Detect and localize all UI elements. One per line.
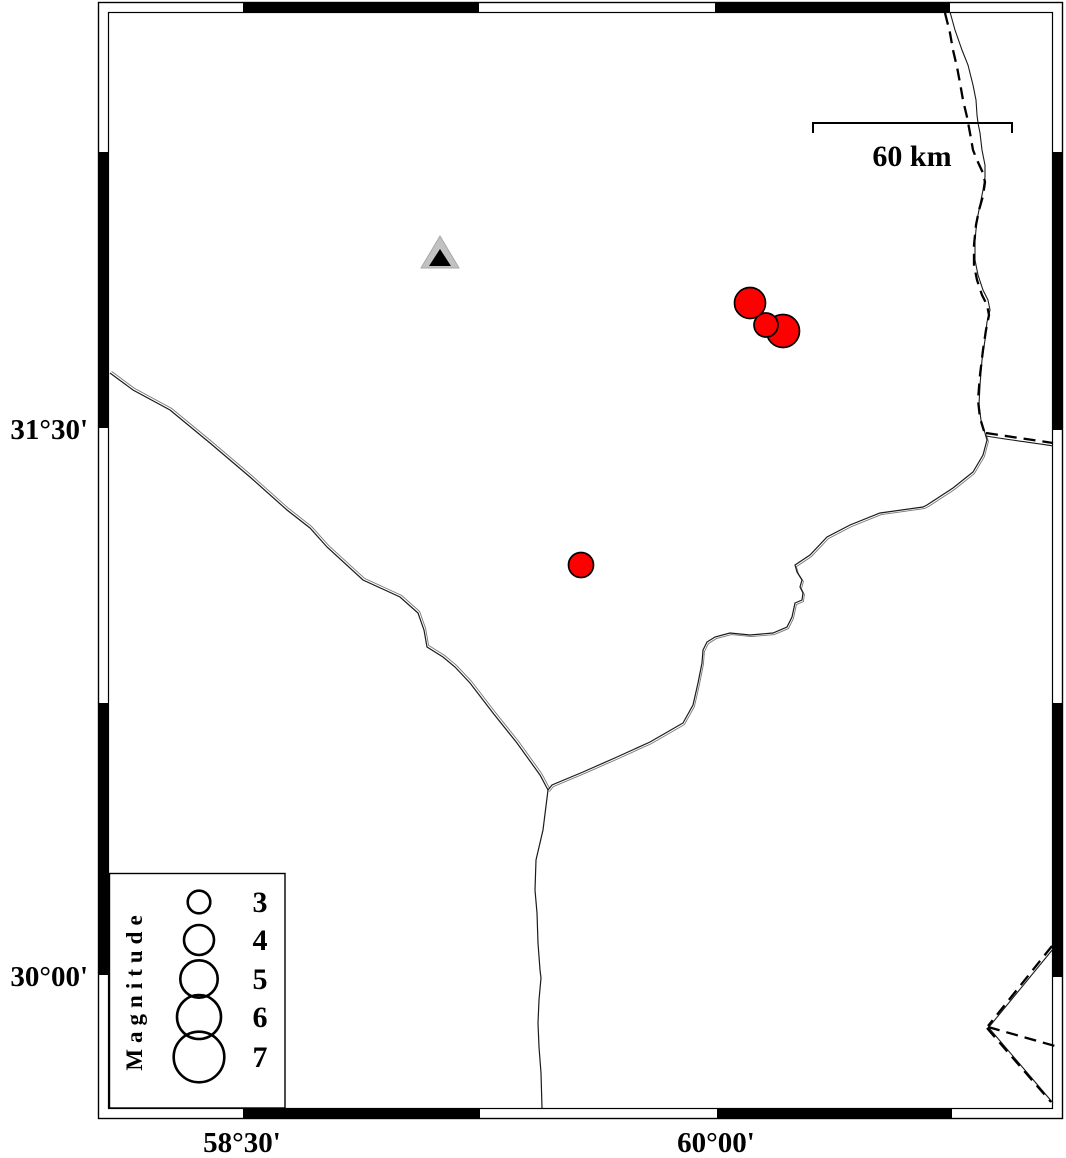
legend-number-3: 3	[253, 886, 268, 919]
dashed-border-se-middle	[988, 1027, 1055, 1046]
legend-number-4: 4	[253, 924, 268, 957]
map-canvas: 60 km 31°30' 30°00' 58°30' 60°00' Magnit…	[0, 0, 1066, 1158]
frame-segment	[1053, 703, 1063, 977]
national-border-dashed	[945, 13, 1055, 1102]
province-border-northwest	[110, 373, 548, 790]
frame-segment	[99, 703, 109, 975]
national-border-solid-southeast-upper	[989, 949, 1053, 1027]
frame-segment	[717, 1109, 952, 1119]
lon-label-6000: 60°00'	[677, 1127, 755, 1158]
legend-number-7: 7	[253, 1041, 268, 1074]
legend-title: Magnitude	[122, 909, 147, 1070]
map-figure: 60 km 31°30' 30°00' 58°30' 60°00' Magnit…	[0, 0, 1066, 1158]
province-border-shadow	[549, 435, 988, 792]
frame-segment	[99, 152, 109, 428]
scale-bar-bracket	[813, 123, 1012, 133]
dashed-border-se-lower	[987, 1028, 1051, 1102]
legend-number-5: 5	[253, 963, 268, 996]
legend-number-6: 6	[253, 1001, 268, 1034]
earthquake-marker	[735, 288, 766, 319]
earthquake-marker	[569, 553, 594, 578]
frame-segment	[715, 3, 950, 13]
lon-label-5830: 58°30'	[203, 1127, 281, 1158]
province-border-east	[548, 433, 987, 790]
frame-segment	[243, 3, 479, 13]
lat-label-3130: 31°30'	[10, 414, 88, 446]
lat-label-3000: 30°00'	[10, 961, 88, 993]
magnitude-legend: Magnitude 34567	[110, 874, 286, 1109]
dashed-border-north	[945, 13, 989, 431]
dashed-border-se-upper	[988, 946, 1052, 1026]
frame-segment	[243, 1109, 480, 1119]
scale-bar-label: 60 km	[872, 140, 951, 173]
frame-segment	[1053, 152, 1063, 430]
earthquake-markers	[569, 288, 800, 578]
national-border-solid-north	[950, 12, 990, 433]
province-border-south	[535, 790, 548, 1108]
station-marker	[421, 236, 459, 268]
province-border-shadow	[112, 371, 550, 788]
